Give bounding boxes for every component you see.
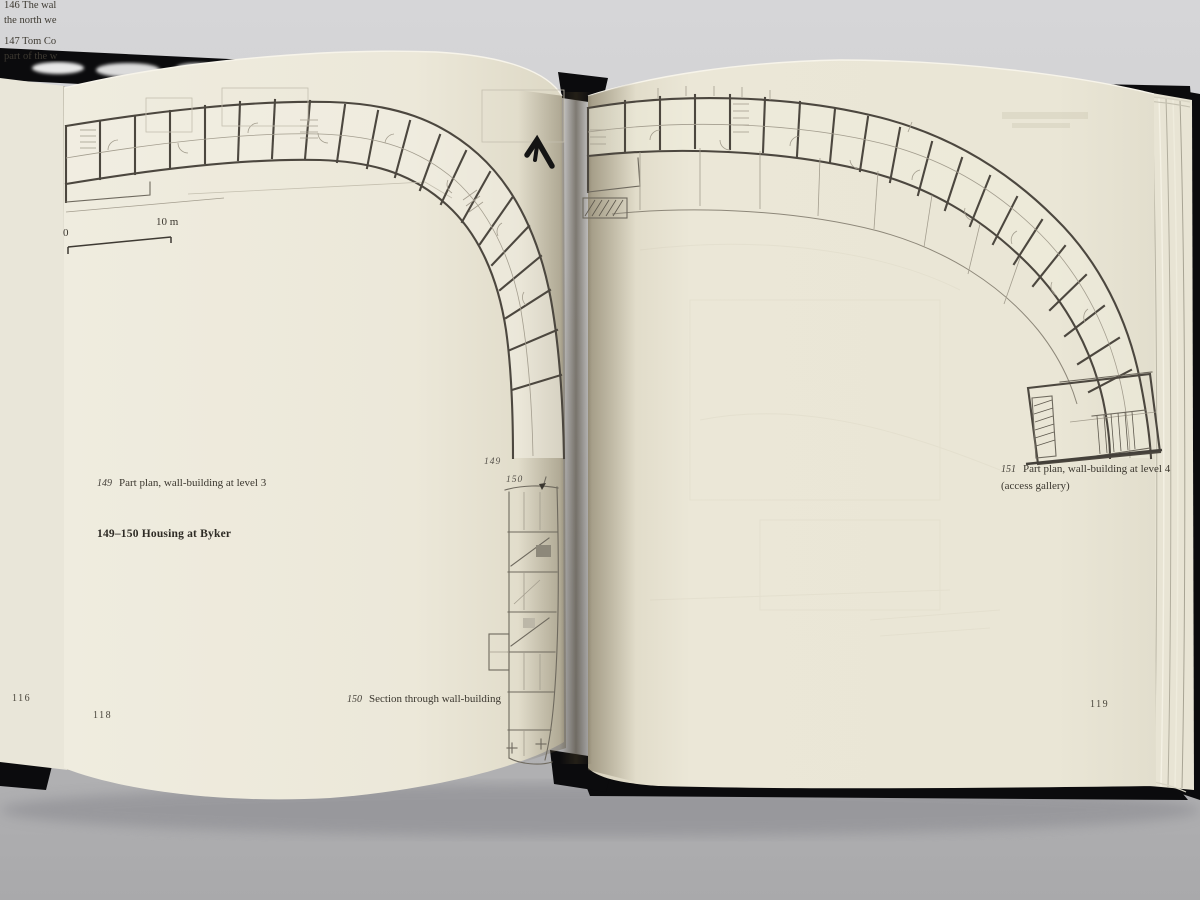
caption-147-line2: part of the w: [4, 51, 57, 62]
page-number-119: 119: [1090, 698, 1109, 711]
section-heading: 149–150 Housing at Byker: [97, 528, 231, 540]
book-artwork: [0, 0, 1200, 900]
caption-149-number: 149: [97, 478, 112, 489]
caption-146-line2: the north we: [4, 15, 57, 26]
caption-150: 150Section through wall-building: [347, 692, 501, 706]
caption-147-line1: 147 Tom Co: [4, 36, 56, 47]
book-photo: 146 The wal the north we 147 Tom Co part…: [0, 0, 1200, 900]
page-number-116: 116: [12, 692, 31, 705]
caption-151: 151Part plan, wall-building at level 4 (…: [1001, 461, 1191, 495]
caption-151-number: 151: [1001, 464, 1016, 475]
caption-151-text2: (access gallery): [1001, 480, 1070, 492]
caption-150-number: 150: [347, 694, 362, 705]
figure-label-150: 150: [506, 475, 523, 485]
scale-zero-label: 0: [63, 226, 69, 240]
left-edge-page-text: 146 The wal the north we 147 Tom Co part…: [0, 0, 58, 72]
scale-ten-label: 10 m: [156, 215, 178, 229]
caption-149-text: Part plan, wall-building at level 3: [119, 477, 266, 489]
under-page: [0, 78, 68, 770]
caption-149: 149Part plan, wall-building at level 3: [97, 476, 266, 490]
page-number-118: 118: [93, 709, 112, 722]
caption-146-line1: 146 The wal: [4, 0, 56, 11]
caption-150-text: Section through wall-building: [369, 693, 501, 705]
figure-label-149: 149: [484, 457, 501, 467]
caption-151-text: Part plan, wall-building at level 4: [1023, 463, 1170, 475]
